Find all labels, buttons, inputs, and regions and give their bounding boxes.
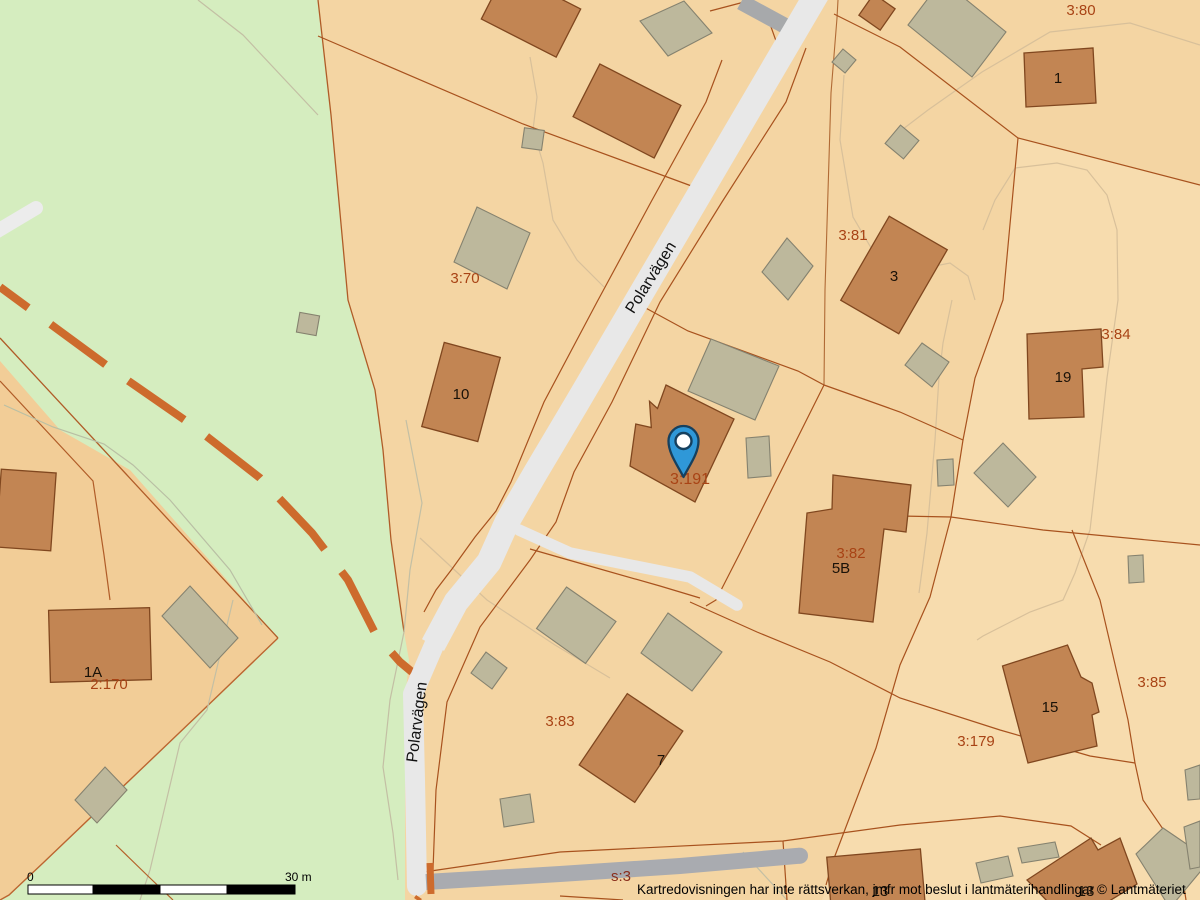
- svg-text:10: 10: [453, 386, 470, 403]
- svg-text:5B: 5B: [832, 560, 850, 577]
- svg-text:7: 7: [657, 752, 665, 769]
- svg-text:3:70: 3:70: [450, 270, 479, 287]
- svg-text:3:80: 3:80: [1066, 2, 1095, 19]
- svg-text:0: 0: [27, 870, 34, 884]
- svg-text:Kartredovisningen har inte rät: Kartredovisningen har inte rättsverkan, …: [637, 882, 1094, 897]
- svg-text:19: 19: [1055, 369, 1072, 386]
- svg-text:3:85: 3:85: [1137, 674, 1166, 691]
- svg-text:3:179: 3:179: [957, 733, 995, 750]
- svg-text:15: 15: [1042, 699, 1059, 716]
- svg-text:s:3: s:3: [611, 868, 631, 885]
- svg-text:1A: 1A: [84, 664, 102, 681]
- svg-text:3: 3: [890, 268, 898, 285]
- svg-text:13: 13: [1078, 883, 1095, 900]
- svg-text:1: 1: [1054, 70, 1062, 87]
- svg-text:© Lantmäteriet: © Lantmäteriet: [1097, 882, 1186, 897]
- svg-text:3:81: 3:81: [838, 227, 867, 244]
- svg-text:3:83: 3:83: [545, 713, 574, 730]
- svg-text:30 m: 30 m: [285, 870, 312, 884]
- svg-text:3:84: 3:84: [1101, 326, 1130, 343]
- svg-text:3:191: 3:191: [670, 471, 710, 488]
